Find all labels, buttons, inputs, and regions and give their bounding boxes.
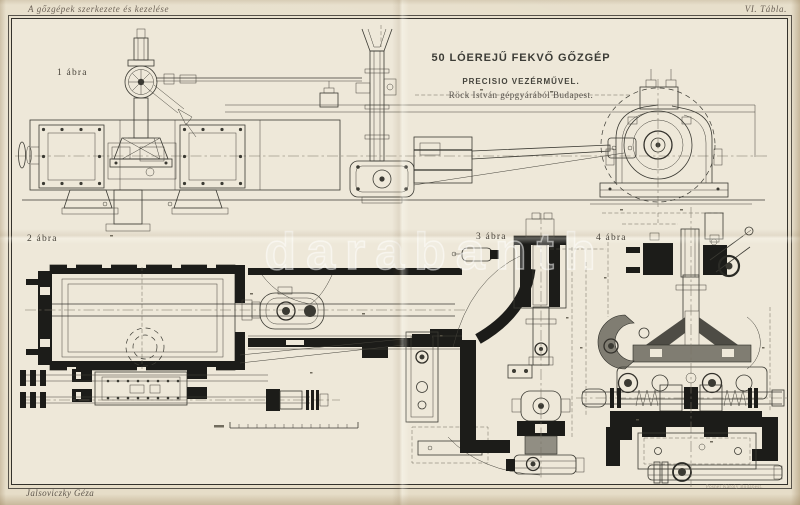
printer-imprint: Posner Károly Budapest. [706, 485, 763, 490]
foundation [62, 190, 228, 231]
cylinder-cover-left [39, 125, 104, 188]
series-title: A gőzgépek szerkezete és kezelése [28, 4, 169, 14]
figure-3-label: 3 ábra [476, 232, 507, 242]
maker-credit: Röck István gépgyárából Budapest. [411, 90, 631, 100]
valve-spindle [576, 385, 788, 411]
frame-section [460, 340, 510, 453]
connecting-rod [414, 138, 636, 185]
figure-1-drawing [15, 25, 768, 231]
figure-2-drawing [20, 263, 488, 463]
scanned-plate-page: A gőzgépek szerkezete és kezelése VI. Tá… [0, 0, 800, 505]
valve-gear-column [350, 29, 414, 203]
figure-4-label: 4 ábra [596, 233, 627, 243]
figure-2-label: 2 ábra [27, 234, 58, 244]
plate-title: 50 LÓEREJŰ FEKVŐ GŐZGÉP [411, 52, 631, 64]
governor [110, 29, 196, 167]
dimension-marks [110, 89, 765, 487]
scale-bar [214, 422, 358, 428]
figure-1-label: 1 ábra [57, 68, 88, 78]
engine-drawing [10, 17, 790, 487]
bottom-rod [648, 462, 782, 483]
crosshead-plan [260, 287, 324, 329]
cylinder-plan [26, 263, 245, 372]
figure-4-drawing [576, 207, 788, 487]
plate-subtitle: PRECISIO VEZÉRMŰVEL. [421, 77, 621, 86]
valve-chest-plan [72, 367, 207, 405]
plate-number: VI. Tábla. [745, 4, 787, 14]
cylinder-cover-right [180, 125, 245, 188]
author-signature: Jalsoviczky Géza [26, 488, 94, 498]
shaft-stub [19, 142, 40, 168]
figure-3-drawing [448, 213, 606, 479]
